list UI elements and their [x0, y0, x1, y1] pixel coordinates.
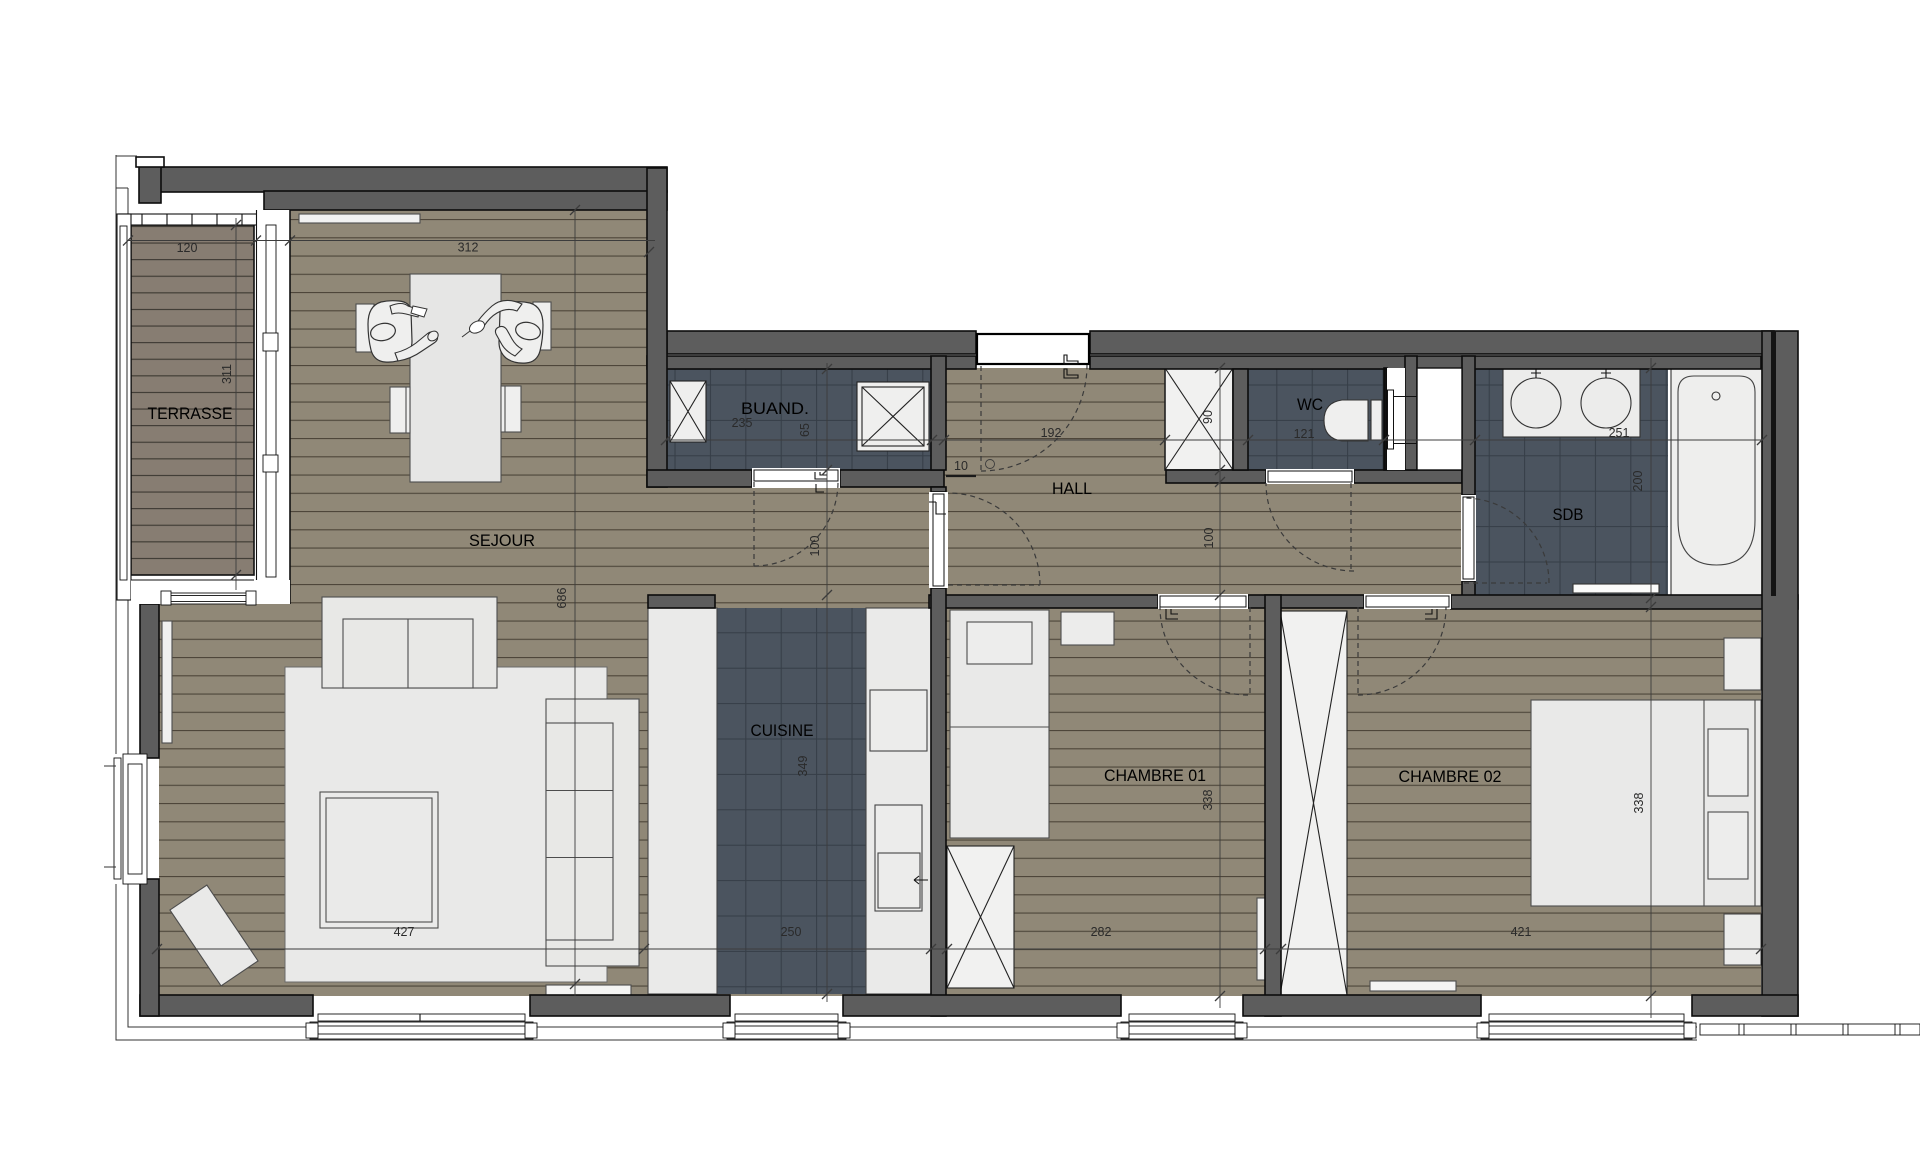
svg-text:HALL: HALL [1052, 480, 1092, 498]
svg-text:250: 250 [781, 925, 802, 939]
svg-text:CUISINE: CUISINE [751, 722, 814, 740]
svg-text:TERRASSE: TERRASSE [148, 405, 233, 423]
svg-text:SDB: SDB [1553, 506, 1584, 524]
svg-text:312: 312 [458, 241, 479, 255]
svg-text:349: 349 [796, 756, 810, 777]
svg-text:200: 200 [1631, 471, 1645, 492]
svg-text:90: 90 [1201, 410, 1215, 424]
svg-text:421: 421 [1511, 925, 1532, 939]
svg-text:338: 338 [1201, 790, 1215, 811]
svg-text:CHAMBRE 01: CHAMBRE 01 [1104, 767, 1206, 785]
svg-text:686: 686 [555, 588, 569, 609]
svg-text:192: 192 [1041, 426, 1062, 440]
svg-text:SEJOUR: SEJOUR [469, 532, 535, 550]
svg-text:311: 311 [220, 364, 234, 384]
svg-text:WC: WC [1297, 396, 1323, 414]
svg-text:338: 338 [1632, 793, 1646, 814]
svg-text:CHAMBRE 02: CHAMBRE 02 [1399, 768, 1502, 786]
svg-text:282: 282 [1091, 925, 1112, 939]
svg-text:10: 10 [954, 459, 968, 473]
svg-text:121: 121 [1294, 427, 1315, 441]
svg-text:251: 251 [1609, 426, 1630, 440]
svg-text:235: 235 [732, 416, 753, 430]
svg-text:100: 100 [1202, 528, 1216, 549]
svg-text:65: 65 [798, 423, 812, 437]
svg-text:120: 120 [177, 241, 198, 255]
svg-text:100: 100 [808, 536, 822, 557]
svg-text:427: 427 [394, 925, 415, 939]
